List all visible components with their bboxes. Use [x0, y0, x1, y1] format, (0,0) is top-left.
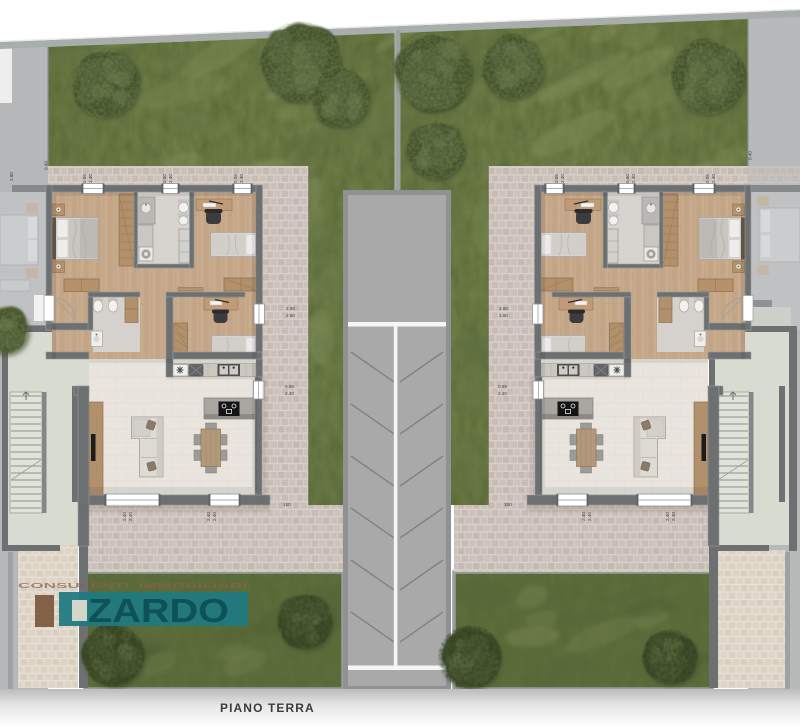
svg-text:2.40: 2.40 [128, 512, 133, 521]
svg-text:2.40: 2.40 [88, 174, 93, 183]
svg-text:2.60: 2.60 [286, 313, 295, 318]
svg-text:0.85: 0.85 [285, 384, 294, 389]
svg-text:150: 150 [504, 502, 512, 507]
svg-text:2.40: 2.40 [168, 174, 173, 183]
svg-text:2.80: 2.80 [9, 172, 14, 181]
svg-text:2.40: 2.40 [560, 174, 565, 183]
svg-text:0.85: 0.85 [554, 174, 559, 183]
svg-text:ZARDO: ZARDO [88, 592, 229, 629]
svg-text:PIANO TERRA: PIANO TERRA [220, 701, 315, 715]
svg-text:2.40: 2.40 [239, 174, 244, 183]
svg-text:2.60: 2.60 [499, 313, 508, 318]
svg-text:150: 150 [283, 502, 291, 507]
svg-text:2.60: 2.60 [286, 306, 295, 311]
svg-text:2.40: 2.40 [665, 512, 670, 521]
svg-text:0.85: 0.85 [705, 174, 710, 183]
svg-text:0.40: 0.40 [748, 151, 753, 160]
svg-text:2.40: 2.40 [631, 174, 636, 183]
svg-text:2.40: 2.40 [711, 174, 716, 183]
svg-text:0.40: 0.40 [44, 161, 49, 170]
svg-text:2.60: 2.60 [499, 306, 508, 311]
svg-text:2.40: 2.40 [212, 512, 217, 521]
svg-text:2.40: 2.40 [581, 512, 586, 521]
svg-text:2.40: 2.40 [122, 512, 127, 521]
svg-text:2.40: 2.40 [285, 391, 294, 396]
svg-text:2.40: 2.40 [498, 391, 507, 396]
svg-text:2.40: 2.40 [671, 512, 676, 521]
svg-text:CONSULENTI IMMOBILIARI: CONSULENTI IMMOBILIARI [18, 581, 247, 590]
svg-text:2.40: 2.40 [587, 512, 592, 521]
svg-text:0.85: 0.85 [233, 174, 238, 183]
svg-text:0.60: 0.60 [162, 174, 167, 183]
svg-text:0.60: 0.60 [625, 174, 630, 183]
svg-text:0.85: 0.85 [498, 384, 507, 389]
svg-text:2.40: 2.40 [206, 512, 211, 521]
svg-text:0.85: 0.85 [82, 174, 87, 183]
